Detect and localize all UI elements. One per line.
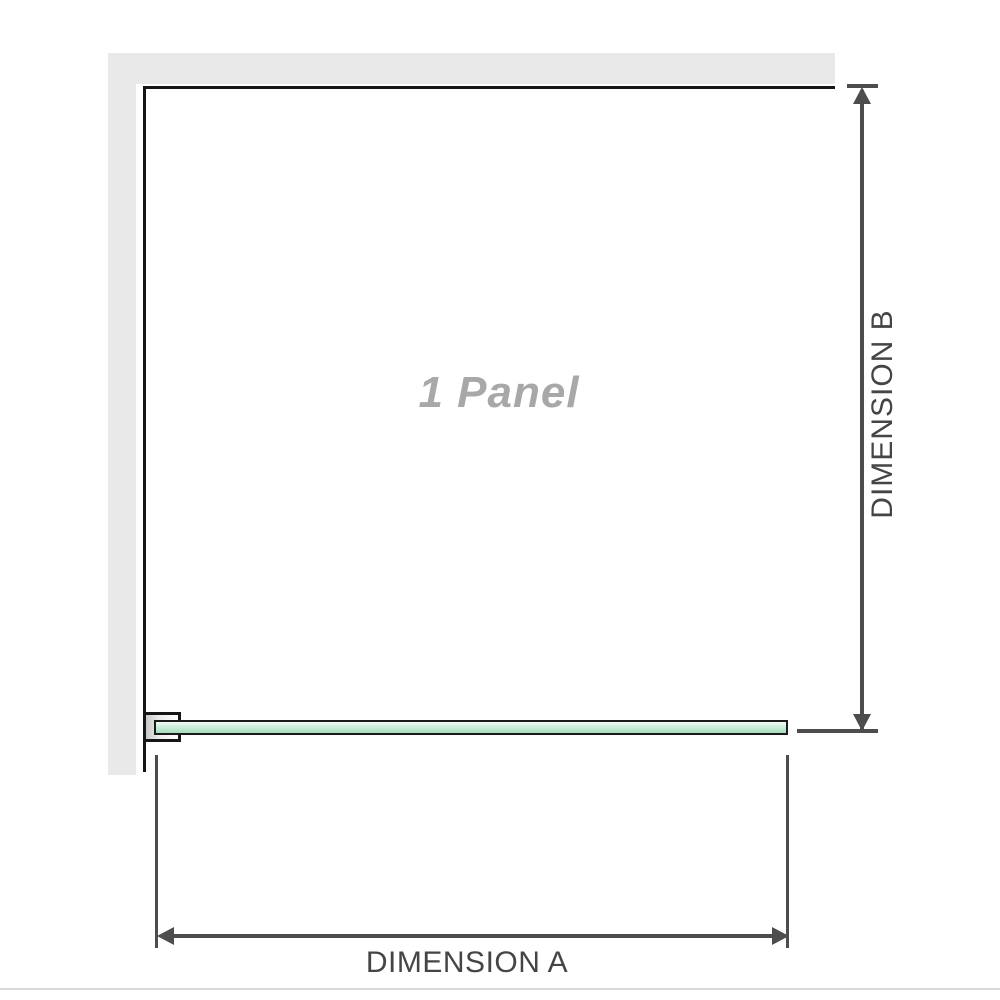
arrow-down-icon bbox=[853, 714, 871, 731]
arrow-right-icon bbox=[772, 927, 789, 945]
dimension-a-label: DIMENSION A bbox=[267, 946, 667, 979]
dimension-b-label: DIMENSION B bbox=[867, 254, 899, 574]
bottom-divider-line bbox=[0, 988, 1000, 990]
dimension-b-line bbox=[860, 90, 864, 730]
panel-outline-top-line bbox=[143, 86, 835, 89]
panel-outline-left-line bbox=[143, 86, 146, 772]
glass-panel-plan-view bbox=[154, 720, 788, 735]
arrow-left-icon bbox=[157, 927, 174, 945]
wall-top-band bbox=[108, 53, 835, 84]
dimension-a-left-extension-line bbox=[155, 755, 158, 948]
arrow-up-icon bbox=[853, 87, 871, 104]
dimension-a-line bbox=[162, 934, 784, 938]
dimension-a-right-extension-line bbox=[786, 755, 789, 948]
wall-left-band bbox=[108, 53, 136, 775]
panel-count-label: 1 Panel bbox=[299, 369, 699, 417]
shower-panel-dimension-diagram: 1 Panel DIMENSION B DIMENSION A bbox=[0, 0, 1000, 1000]
